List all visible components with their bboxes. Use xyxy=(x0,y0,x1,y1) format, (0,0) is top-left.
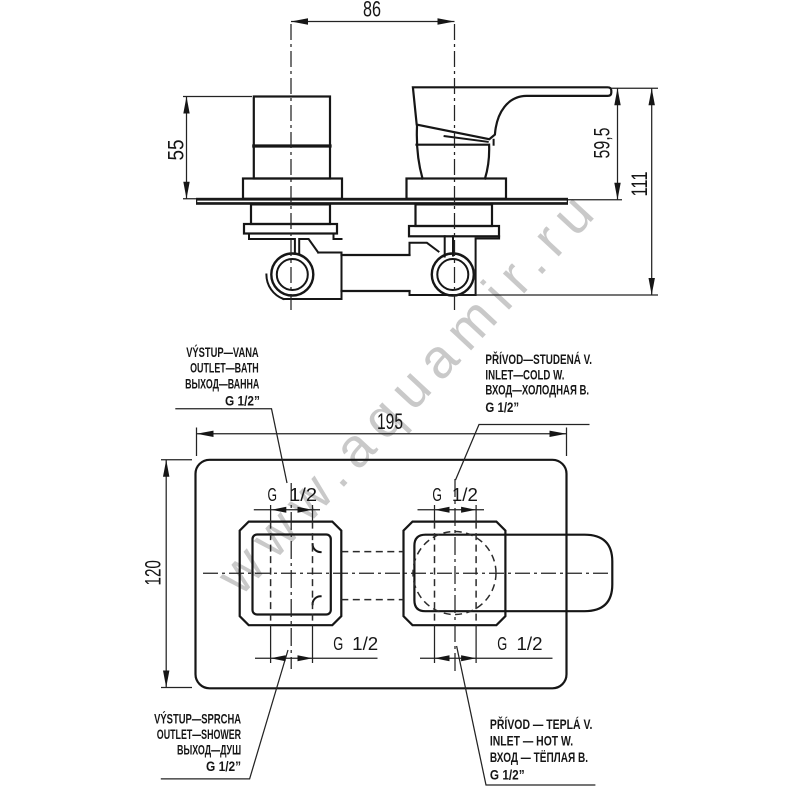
svg-text:G 1/2”: G 1/2” xyxy=(206,758,241,774)
svg-text:INLET—COLD W.: INLET—COLD W. xyxy=(485,366,564,382)
svg-text:OUTLET—BATH: OUTLET—BATH xyxy=(190,359,259,375)
svg-text:G: G xyxy=(432,485,442,505)
svg-text:G: G xyxy=(333,634,343,654)
svg-text:ВЫХОД—ВАННА: ВЫХОД—ВАННА xyxy=(185,376,259,392)
svg-text:55: 55 xyxy=(164,140,189,161)
svg-text:120: 120 xyxy=(140,560,165,585)
svg-text:G 1/2”: G 1/2” xyxy=(490,767,525,783)
svg-text:OUTLET—SHOWER: OUTLET—SHOWER xyxy=(157,726,241,742)
svg-text:59,5: 59,5 xyxy=(590,128,615,159)
svg-text:G 1/2”: G 1/2” xyxy=(485,399,519,415)
svg-text:ВХОД — ТЁПЛАЯ В.: ВХОД — ТЁПЛАЯ В. xyxy=(490,749,588,765)
svg-text:VÝSTUP—SPRCHA: VÝSTUP—SPRCHA xyxy=(154,710,241,727)
svg-text:G: G xyxy=(497,634,507,654)
svg-text:1/2: 1/2 xyxy=(452,485,478,505)
svg-text:G: G xyxy=(267,485,277,505)
svg-text:195: 195 xyxy=(377,409,403,434)
svg-text:INLET — HOT W.: INLET — HOT W. xyxy=(490,732,573,748)
svg-text:ВЫХОД—ДУШ: ВЫХОД—ДУШ xyxy=(177,742,241,758)
svg-text:ВХОД—ХОЛОДНАЯ В.: ВХОД—ХОЛОДНАЯ В. xyxy=(485,382,589,398)
svg-text:1/2: 1/2 xyxy=(352,634,378,654)
svg-text:1/2: 1/2 xyxy=(289,485,317,505)
svg-text:PŘÍVOD—STUDENÁ V.: PŘÍVOD—STUDENÁ V. xyxy=(485,350,592,367)
svg-text:PŘÍVOD — TEPLÁ V.: PŘÍVOD — TEPLÁ V. xyxy=(490,715,593,732)
svg-text:VÝSTUP—VANA: VÝSTUP—VANA xyxy=(186,343,259,360)
svg-text:G 1/2”: G 1/2” xyxy=(225,392,260,408)
svg-text:111: 111 xyxy=(627,172,652,197)
svg-text:86: 86 xyxy=(363,0,381,22)
svg-text:1/2: 1/2 xyxy=(517,634,543,654)
